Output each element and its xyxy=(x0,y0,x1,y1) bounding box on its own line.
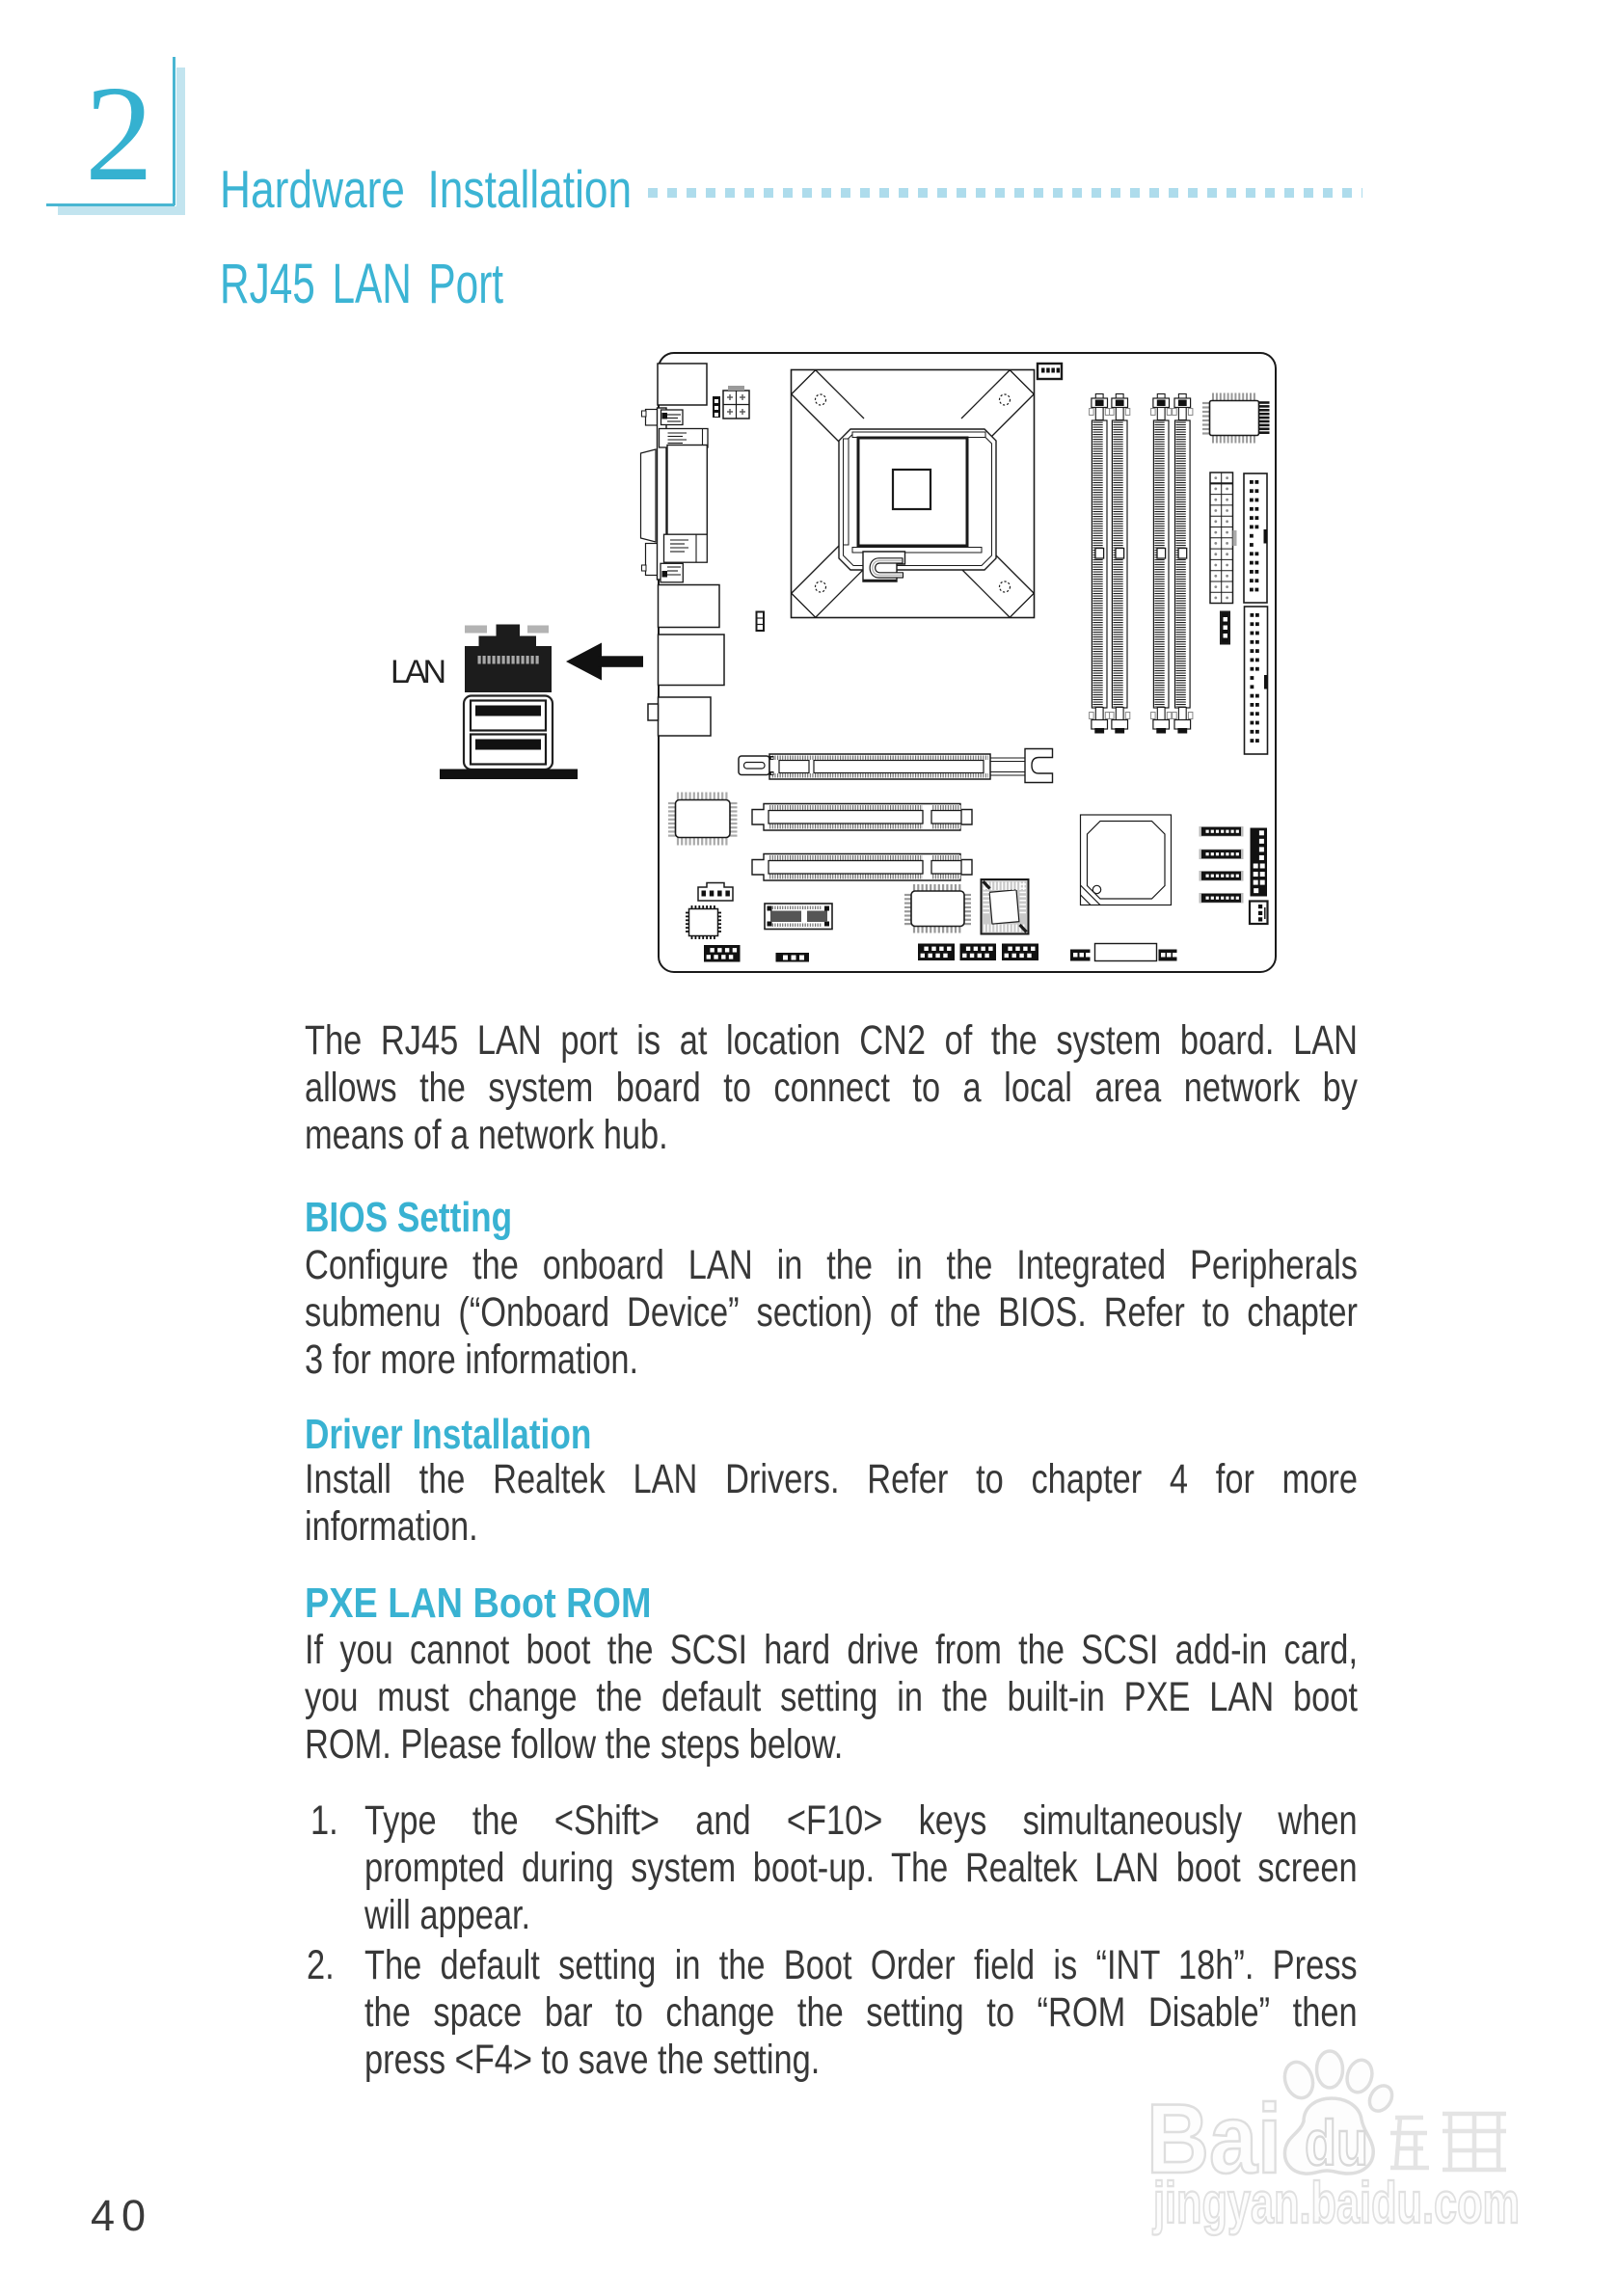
svg-text:du: du xyxy=(1305,2107,1368,2178)
svg-text:jingyan.baidu.com: jingyan.baidu.com xyxy=(1152,2171,1520,2235)
svg-text:LAN: LAN xyxy=(391,654,446,690)
